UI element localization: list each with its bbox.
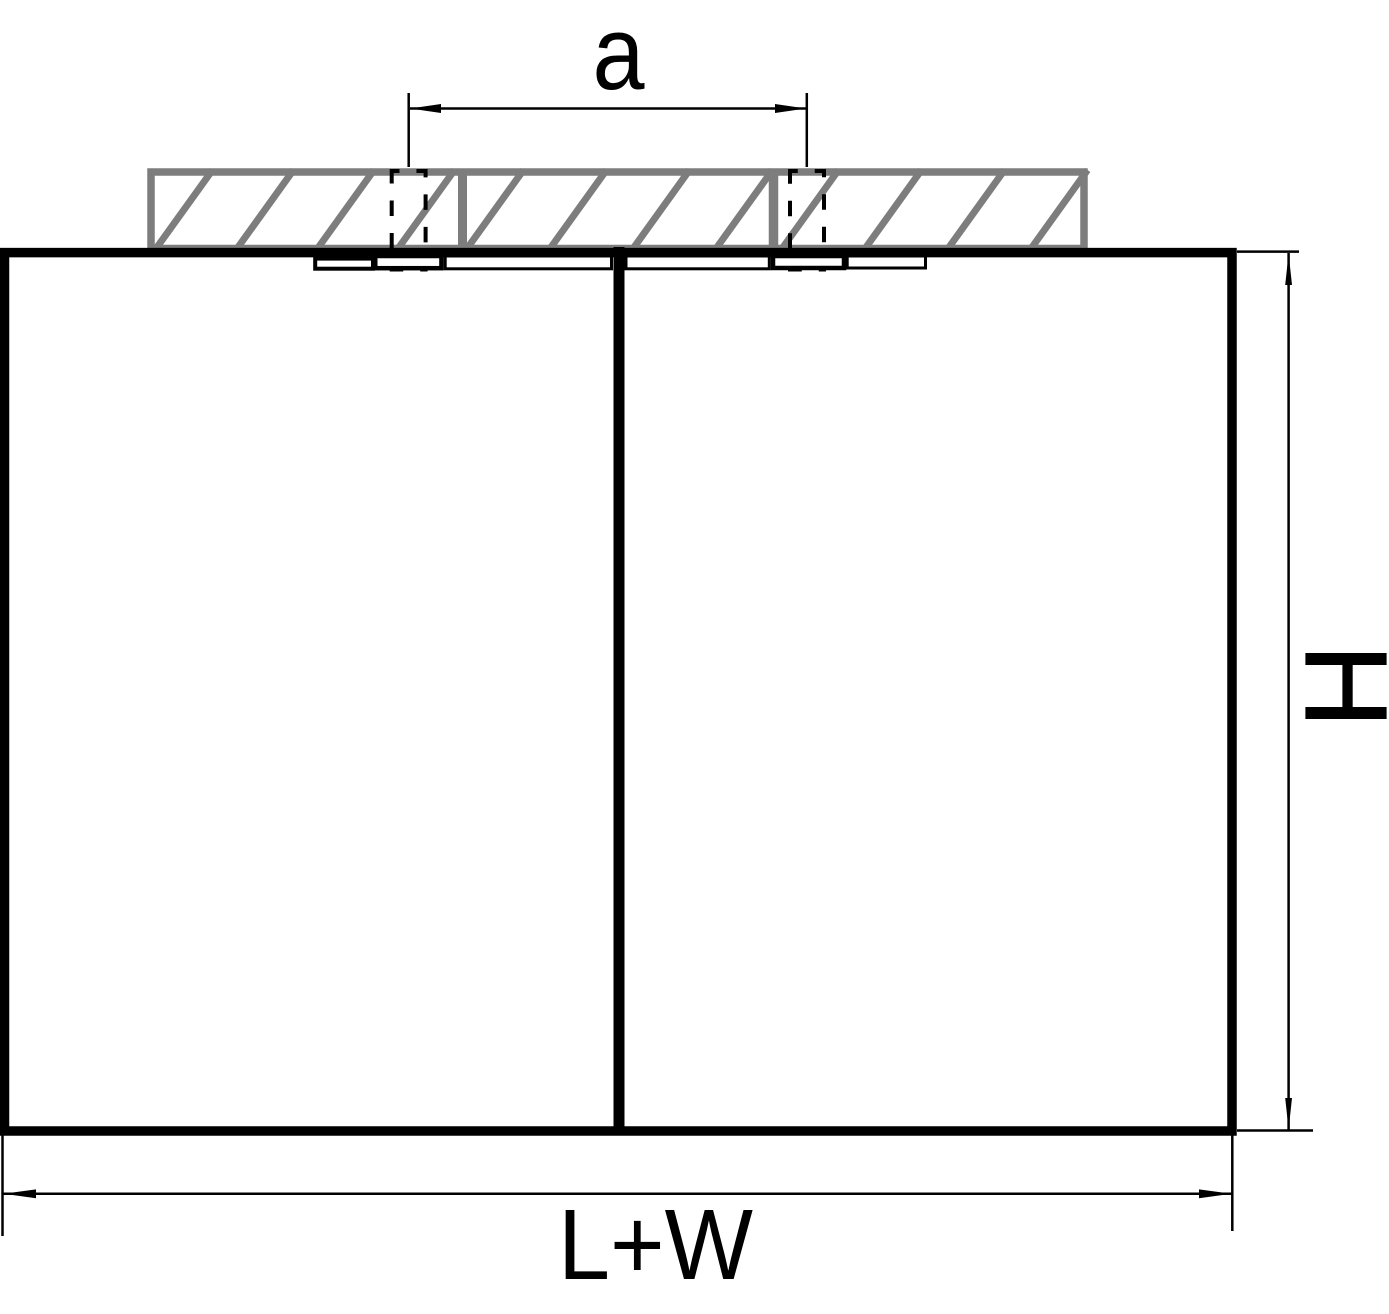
svg-text:H: H bbox=[1281, 644, 1389, 728]
svg-text:a: a bbox=[593, 0, 646, 112]
svg-text:L+W: L+W bbox=[558, 1189, 754, 1301]
